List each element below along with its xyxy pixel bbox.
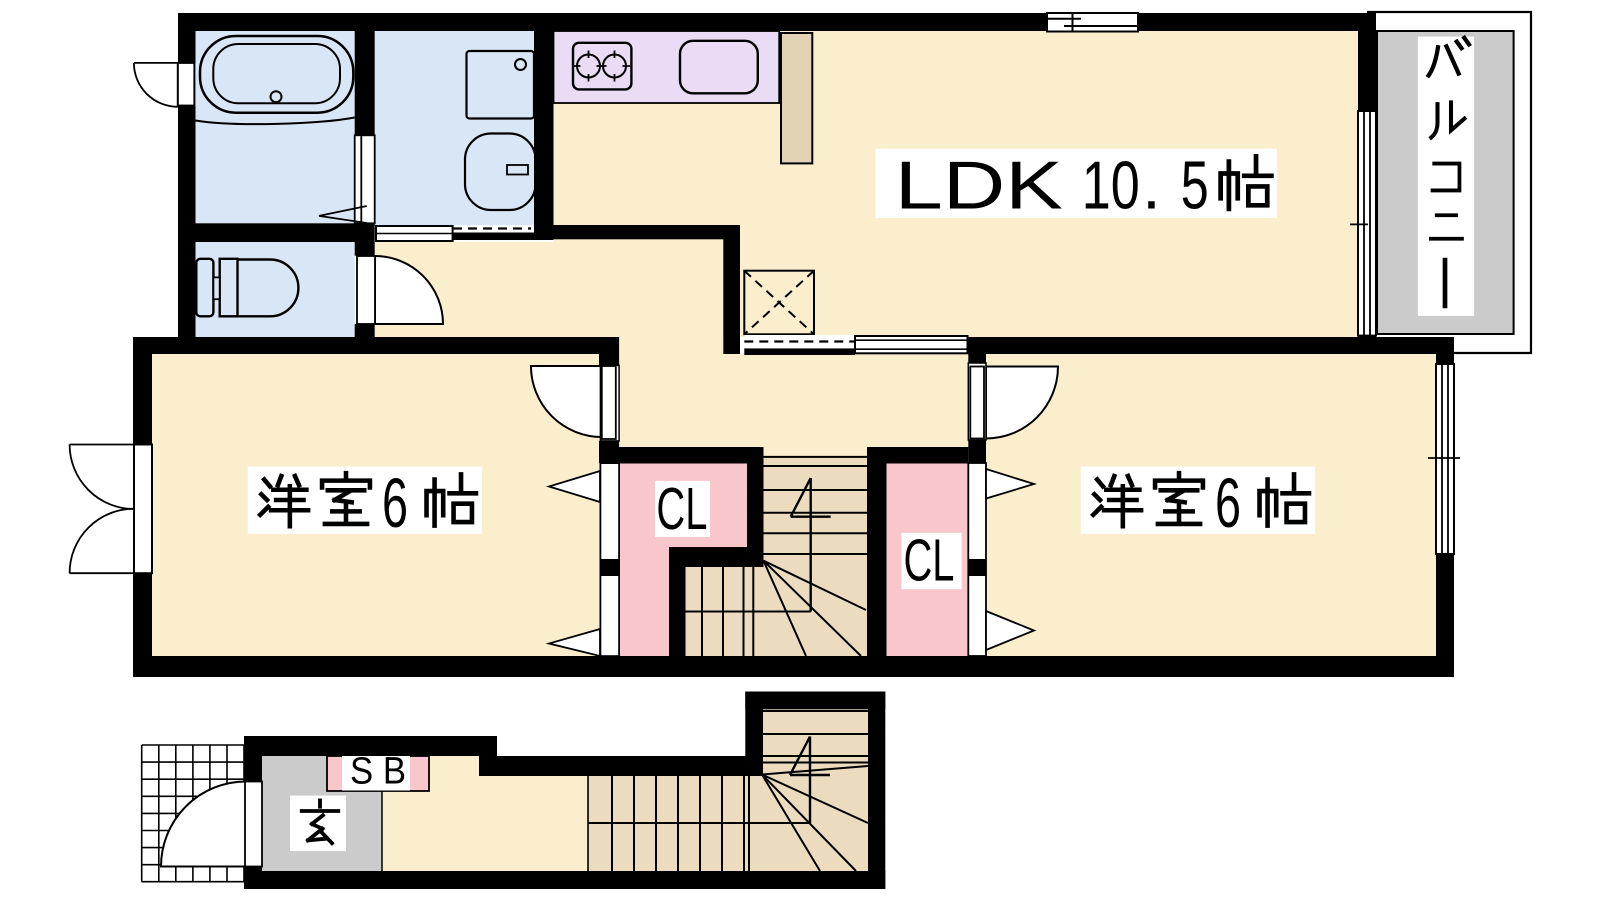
- svg-text:S B: S B: [350, 751, 406, 793]
- svg-text:6: 6: [1215, 464, 1241, 542]
- svg-text:10: 10: [1082, 148, 1140, 224]
- svg-text:6: 6: [382, 464, 408, 542]
- svg-text:.: .: [1142, 148, 1161, 224]
- svg-text:CL: CL: [656, 476, 707, 542]
- svg-text:LDK: LDK: [895, 148, 1063, 224]
- svg-text:5: 5: [1181, 148, 1209, 224]
- svg-text:CL: CL: [904, 528, 955, 594]
